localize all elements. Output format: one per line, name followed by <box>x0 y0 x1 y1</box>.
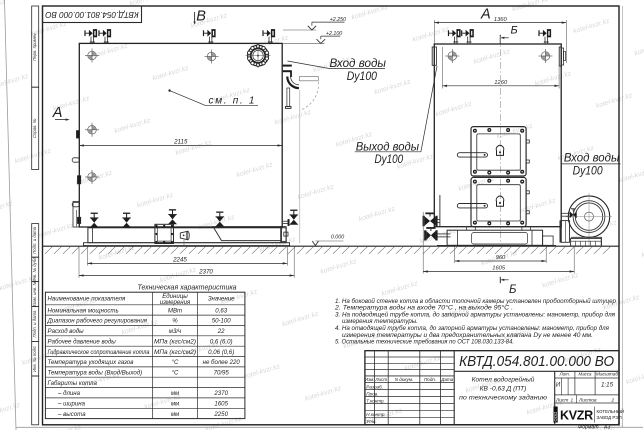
svg-text:МВт: МВт <box>168 307 182 314</box>
svg-text:В: В <box>196 8 206 24</box>
svg-text:Масса: Масса <box>579 372 593 377</box>
svg-text:Рабочее давление воды: Рабочее давление воды <box>48 338 117 345</box>
svg-text:1605: 1605 <box>214 401 228 408</box>
svg-text:Котел водогрейный: Котел водогрейный <box>472 376 535 384</box>
svg-text:2250: 2250 <box>213 411 228 418</box>
svg-text:Подп.: Подп. <box>424 377 436 382</box>
svg-text:0,6 (6,0): 0,6 (6,0) <box>210 338 233 345</box>
svg-text:Dy100: Dy100 <box>573 163 603 177</box>
svg-text:– длина: – длина <box>57 390 81 397</box>
svg-text:А: А <box>52 105 63 121</box>
svg-text:2115: 2115 <box>173 139 188 146</box>
svg-text:мм: мм <box>171 390 180 397</box>
svg-text:Dy100: Dy100 <box>375 152 404 166</box>
svg-text:1605: 1605 <box>492 266 506 272</box>
svg-text:%: % <box>172 318 178 325</box>
svg-text:КВТД.054.801.00.000 ВО: КВТД.054.801.00.000 ВО <box>459 354 614 370</box>
svg-text:Формат: Формат <box>578 425 599 430</box>
svg-text:ЗАВОД РЭП: ЗАВОД РЭП <box>597 415 622 420</box>
svg-text:Диапазон рабочего регулировани: Диапазон рабочего регулирования <box>47 318 148 325</box>
svg-text:70/95: 70/95 <box>214 370 230 377</box>
svg-text:KVZR: KVZR <box>560 409 593 423</box>
svg-text:+2.250: +2.250 <box>330 17 346 23</box>
svg-text:2245: 2245 <box>172 257 187 264</box>
svg-text:по техническому заданию: по техническому заданию <box>459 394 547 402</box>
svg-text:Инв. № дубл.: Инв. № дубл. <box>32 256 37 282</box>
svg-text:Н.контр.: Н.контр. <box>366 412 385 417</box>
svg-text:Пров.: Пров. <box>366 391 378 396</box>
svg-text:ООО: ООО <box>553 411 558 422</box>
svg-text:Б: Б <box>509 284 517 296</box>
svg-text:Температура уходящих газов: Температура уходящих газов <box>48 359 134 366</box>
svg-text:0.000: 0.000 <box>331 235 344 241</box>
svg-text:Габариты котла: Габариты котла <box>48 380 98 387</box>
svg-text:Значение: Значение <box>208 296 235 303</box>
svg-text:И: И <box>556 383 561 389</box>
svg-text:КВ -0,63 Д (ПТ): КВ -0,63 Д (ПТ) <box>480 386 527 393</box>
svg-text:Подп. и дата: Подп. и дата <box>32 310 37 338</box>
svg-text:5. Остальные технические треб: 5. Остальные технические требования по О… <box>335 339 514 346</box>
svg-text:50-100: 50-100 <box>212 318 232 325</box>
svg-text:Лист: Лист <box>555 397 568 403</box>
svg-text:Температура воды (Вход/Выход): Температура воды (Вход/Выход) <box>48 370 143 377</box>
svg-text:А: А <box>480 7 491 23</box>
svg-text:2370: 2370 <box>198 269 213 276</box>
svg-text:А3: А3 <box>603 425 610 430</box>
svg-text:Разраб.: Разраб. <box>366 384 383 389</box>
svg-text:Наименование показателя: Наименование показателя <box>48 296 126 303</box>
svg-text:Взам. инв. №: Взам. инв. № <box>32 280 37 307</box>
svg-text:не более 220: не более 220 <box>203 359 241 366</box>
svg-text:Лист: Лист <box>374 377 387 382</box>
svg-text:Листов: Листов <box>578 397 597 403</box>
svg-text:Перв. примен.: Перв. примен. <box>32 32 37 61</box>
svg-text:Изм.: Изм. <box>365 377 375 382</box>
svg-text:Т.контр.: Т.контр. <box>366 398 385 403</box>
svg-text:1:15: 1:15 <box>601 382 614 389</box>
svg-text:Вход воды: Вход воды <box>564 150 620 164</box>
svg-text:Лит.: Лит. <box>559 372 570 377</box>
svg-text:Номинальная мощность: Номинальная мощность <box>48 307 119 314</box>
svg-text:2370: 2370 <box>213 390 228 397</box>
svg-text:Масштаб: Масштаб <box>596 372 619 377</box>
svg-text:2: 2 <box>611 397 615 403</box>
svg-text:Б: Б <box>511 24 518 36</box>
svg-text:Dy100: Dy100 <box>347 69 378 83</box>
svg-text:1: 1 <box>571 397 574 403</box>
svg-text:0,06 (0,6): 0,06 (0,6) <box>208 349 234 356</box>
svg-text:1360: 1360 <box>494 17 508 23</box>
svg-text:Вход воды: Вход воды <box>330 56 387 70</box>
svg-text:Справ. №: Справ. № <box>32 118 37 138</box>
svg-text:22: 22 <box>217 328 225 335</box>
svg-text:м3/ч: м3/ч <box>169 328 182 335</box>
svg-text:°С: °С <box>172 370 179 377</box>
svg-text:– ширина: – ширина <box>57 401 86 408</box>
svg-text:0,63: 0,63 <box>215 307 227 314</box>
svg-text:– высота: – высота <box>57 411 86 418</box>
svg-text:мм: мм <box>171 411 180 418</box>
svg-text:Гидравлическое сопротивление к: Гидравлическое сопротивление котла <box>48 349 151 356</box>
svg-text:Утв.: Утв. <box>366 419 376 424</box>
svg-text:см. п. 1: см. п. 1 <box>209 96 257 107</box>
svg-text:КОТЕЛЬНЫЙ: КОТЕЛЬНЫЙ <box>597 409 625 414</box>
svg-text:МПа (кгс/см2): МПа (кгс/см2) <box>154 338 196 345</box>
svg-text:1260: 1260 <box>494 80 508 86</box>
svg-text:измерения: измерения <box>160 299 191 306</box>
svg-text:+2.100: +2.100 <box>326 31 342 37</box>
svg-text:N докум.: N докум. <box>395 377 414 382</box>
svg-text:Дата: Дата <box>440 377 454 382</box>
svg-text:КВТД.054.801.00.000 ВО: КВТД.054.801.00.000 ВО <box>45 10 139 19</box>
svg-text:°С: °С <box>172 359 179 366</box>
svg-text:МПа (кгс/см2): МПа (кгс/см2) <box>154 349 196 356</box>
svg-text:мм: мм <box>171 401 180 408</box>
svg-text:Подп. и дата: Подп. и дата <box>32 226 37 254</box>
svg-text:Техническая характеристика: Техническая характеристика <box>137 285 236 292</box>
svg-text:Расход воды: Расход воды <box>48 328 85 335</box>
svg-text:Инв. № подл.: Инв. № подл. <box>32 345 37 372</box>
svg-text:960: 960 <box>496 255 506 261</box>
